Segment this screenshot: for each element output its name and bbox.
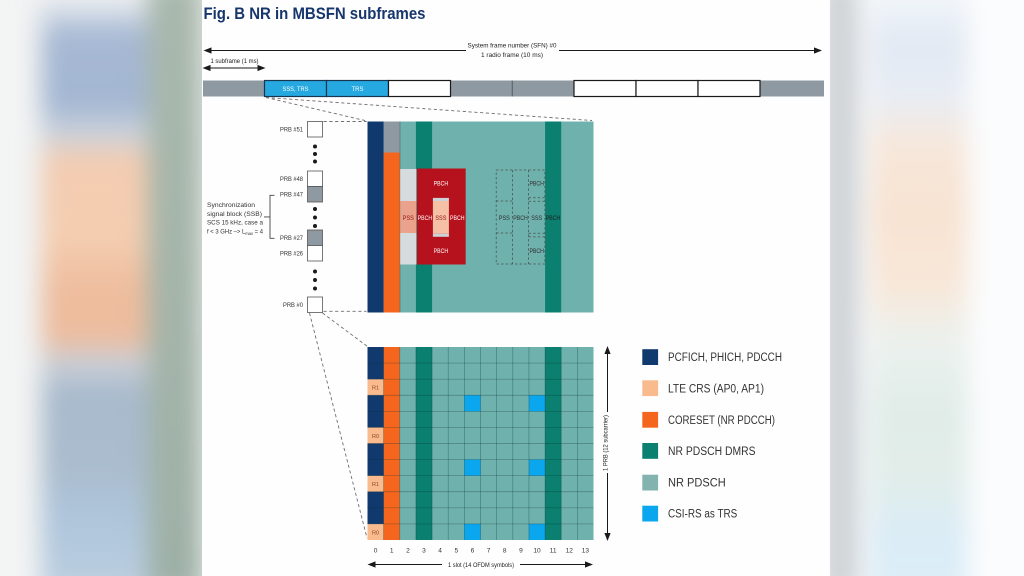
svg-text:SSS: SSS	[435, 216, 446, 222]
svg-text:TRS: TRS	[352, 87, 364, 93]
svg-text:PBCH: PBCH	[529, 182, 544, 188]
svg-text:CSI-RS as TRS: CSI-RS as TRS	[668, 509, 738, 521]
svg-text:PSS: PSS	[499, 216, 510, 222]
svg-text:PSS: PSS	[403, 216, 414, 222]
svg-text:11: 11	[550, 547, 557, 554]
svg-text:R1: R1	[372, 482, 379, 488]
svg-text:System frame number (SFN) #0: System frame number (SFN) #0	[468, 42, 557, 49]
svg-text:PBCH: PBCH	[450, 216, 465, 222]
svg-text:R1: R1	[372, 386, 379, 392]
svg-text:PCFICH, PHICH, PDCCH: PCFICH, PHICH, PDCCH	[668, 352, 782, 364]
svg-text:3: 3	[422, 547, 426, 554]
svg-text:SSS: SSS	[531, 216, 542, 222]
svg-text:1: 1	[390, 547, 394, 554]
svg-text:2: 2	[406, 547, 410, 554]
svg-text:PRB #47: PRB #47	[280, 192, 303, 199]
svg-text:SCS 15 kHz, case a: SCS 15 kHz, case a	[207, 220, 263, 227]
svg-text:LTE CRS (AP0, AP1): LTE CRS (AP0, AP1)	[668, 383, 764, 395]
svg-text:NR PDSCH: NR PDSCH	[668, 478, 726, 490]
svg-text:PRB #27: PRB #27	[280, 235, 303, 242]
svg-text:f < 3 GHz –> Lmax = 4: f < 3 GHz –> Lmax = 4	[207, 229, 263, 237]
svg-text:Synchronization: Synchronization	[207, 202, 255, 209]
svg-text:NR PDSCH DMRS: NR PDSCH DMRS	[668, 446, 756, 458]
svg-text:PRB #48: PRB #48	[280, 176, 303, 183]
svg-text:7: 7	[487, 547, 491, 554]
svg-text:PBCH: PBCH	[529, 249, 544, 255]
svg-text:1 slot (14 OFDM symbols): 1 slot (14 OFDM symbols)	[448, 562, 514, 569]
svg-text:0: 0	[374, 547, 378, 554]
svg-text:CORESET (NR PDCCH): CORESET (NR PDCCH)	[668, 415, 775, 427]
svg-text:R0: R0	[372, 530, 379, 536]
svg-text:1 PRB (12 subcarrier): 1 PRB (12 subcarrier)	[603, 415, 610, 471]
svg-text:Fig. B NR in MBSFN subframes: Fig. B NR in MBSFN subframes	[204, 5, 426, 23]
svg-text:PRB #26: PRB #26	[280, 251, 303, 258]
svg-text:13: 13	[582, 547, 590, 554]
svg-text:PBCH: PBCH	[513, 216, 528, 222]
svg-text:12: 12	[566, 547, 574, 554]
svg-text:PRB #51: PRB #51	[280, 127, 303, 134]
svg-text:6: 6	[471, 547, 475, 554]
svg-text:9: 9	[519, 547, 523, 554]
svg-text:PBCH: PBCH	[418, 216, 433, 222]
svg-text:8: 8	[503, 547, 507, 554]
svg-text:PBCH: PBCH	[434, 249, 449, 255]
svg-text:PBCH: PBCH	[546, 216, 561, 222]
svg-text:PRB #0: PRB #0	[283, 302, 303, 309]
svg-text:PBCH: PBCH	[434, 182, 449, 188]
svg-text:1 radio frame (10 ms): 1 radio frame (10 ms)	[481, 52, 543, 59]
svg-text:signal block (SSB): signal block (SSB)	[207, 211, 262, 218]
svg-text:R0: R0	[372, 434, 379, 440]
svg-text:10: 10	[533, 547, 541, 554]
svg-text:4: 4	[438, 547, 442, 554]
svg-text:1 subframe (1 ms): 1 subframe (1 ms)	[211, 58, 259, 65]
svg-text:SSS, TRS: SSS, TRS	[283, 87, 309, 93]
svg-text:5: 5	[454, 547, 458, 554]
